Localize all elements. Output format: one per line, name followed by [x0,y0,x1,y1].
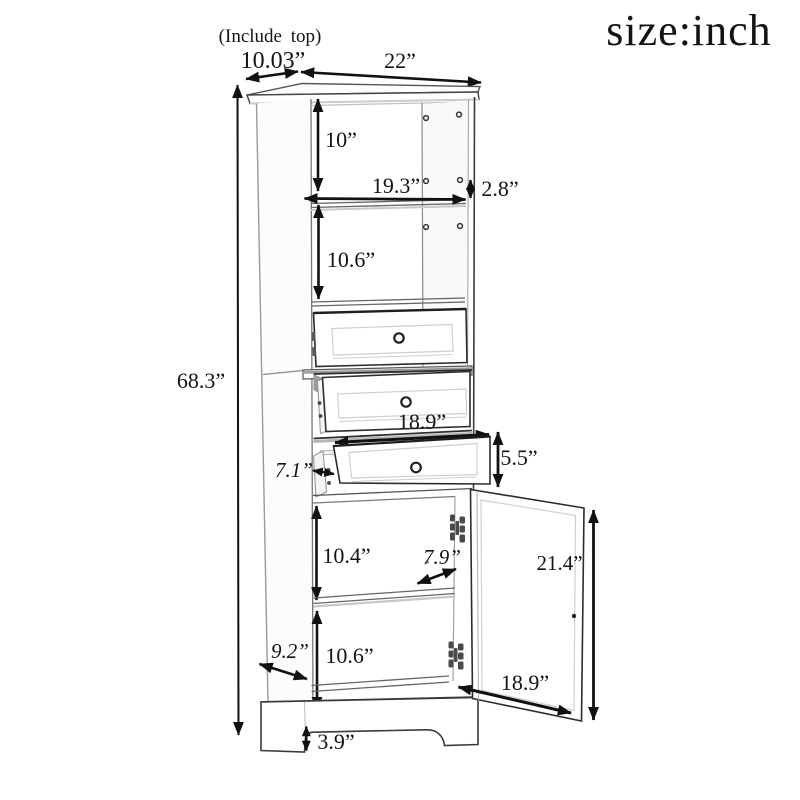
svg-text:7.9”: 7.9” [423,545,461,569]
svg-text:10.6”: 10.6” [325,643,373,668]
svg-text:2.8”: 2.8” [481,176,518,201]
svg-text:10”: 10” [325,127,357,152]
svg-text:18.9”: 18.9” [398,409,446,434]
svg-text:7.1”: 7.1” [275,458,313,482]
svg-text:22”: 22” [384,48,416,73]
svg-text:(Include top): (Include top) [219,26,322,47]
svg-text:5.5”: 5.5” [500,445,537,470]
svg-text:10.4”: 10.4” [322,543,370,568]
svg-text:9.2”: 9.2” [271,639,309,663]
svg-text:size:inch: size:inch [606,6,771,55]
svg-text:3.9”: 3.9” [317,729,354,754]
svg-text:19.3”: 19.3” [372,173,420,198]
svg-text:10.6”: 10.6” [327,247,375,272]
svg-text:68.3”: 68.3” [177,368,225,393]
svg-text:10.03”: 10.03” [241,48,306,74]
svg-text:18.9”: 18.9” [501,670,549,695]
svg-text:21.4”: 21.4” [536,551,582,575]
